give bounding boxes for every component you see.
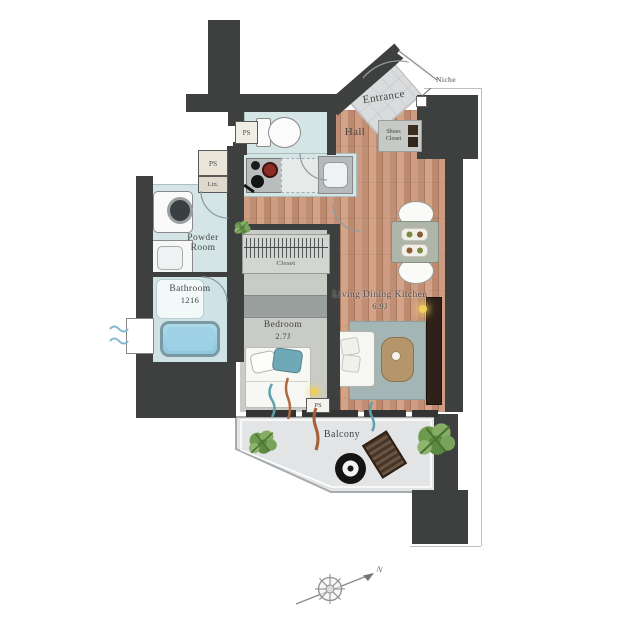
shoes-closet: Shoes Closet bbox=[378, 120, 422, 152]
washer-door bbox=[167, 197, 193, 224]
linen-label: Lin. bbox=[208, 181, 219, 188]
plant-icon bbox=[245, 428, 279, 459]
sink-basin bbox=[323, 162, 348, 188]
shoe-shelf bbox=[408, 137, 418, 147]
pipe-space-box: PS bbox=[306, 398, 330, 413]
closet-rod bbox=[244, 247, 328, 248]
window-sliding-door bbox=[364, 410, 406, 417]
window-sliding-door bbox=[246, 410, 296, 417]
shoe-shelf bbox=[408, 125, 418, 135]
bedroom-label: Bedroom bbox=[243, 320, 323, 330]
wall-segment bbox=[136, 362, 236, 418]
stove-burner bbox=[251, 161, 260, 170]
wall-segment bbox=[445, 159, 463, 412]
balcony-table bbox=[335, 453, 366, 484]
toilet-bowl bbox=[268, 117, 301, 148]
tv-board bbox=[426, 297, 442, 405]
closet-label: Closet bbox=[242, 260, 330, 267]
bedroom-size-label: 2.7J bbox=[243, 332, 323, 341]
plate bbox=[401, 244, 428, 257]
kitchen-counter bbox=[281, 158, 320, 193]
wall-segment bbox=[152, 272, 230, 277]
ps-label: PS bbox=[243, 129, 251, 137]
pot bbox=[262, 162, 278, 178]
bathroom-label: Bathroom bbox=[155, 284, 225, 294]
frying-pan bbox=[251, 175, 264, 188]
bed-sheet-line bbox=[246, 381, 308, 382]
sofa-cushion bbox=[340, 337, 361, 357]
pipe-space-box: PS bbox=[235, 121, 258, 144]
closet-hangers bbox=[246, 238, 326, 258]
bathroom-size-label: 1216 bbox=[155, 296, 225, 305]
linen-box: Lin. bbox=[198, 176, 228, 193]
hall-label: Hall bbox=[333, 127, 377, 139]
shoes-closet-label: Shoes bbox=[379, 129, 408, 136]
plate bbox=[401, 228, 428, 241]
plant-icon bbox=[414, 416, 456, 466]
ps-label: PS bbox=[314, 402, 321, 409]
ldk-label: Living Dining Kitchen bbox=[310, 290, 450, 300]
niche-label: Niche bbox=[428, 76, 464, 84]
powder-room-label-line: Powder bbox=[168, 233, 238, 243]
balcony-label: Balcony bbox=[312, 430, 372, 441]
powder-room-label: Powder Room bbox=[168, 233, 238, 254]
coffee-cup bbox=[391, 351, 401, 361]
wall-segment bbox=[186, 94, 340, 112]
wall-segment bbox=[412, 490, 468, 544]
wall-segment bbox=[240, 224, 328, 230]
pipe-shaft bbox=[126, 318, 154, 354]
pipe-space-box: PS bbox=[198, 150, 228, 176]
ldk-size-label: 6.9J bbox=[310, 302, 450, 311]
pillow-teal bbox=[272, 347, 304, 374]
floor-plan: Shoes Closet PS Lin. PS PS Entrance Nich… bbox=[0, 0, 640, 639]
sofa-cushion bbox=[341, 354, 361, 373]
floor-lamp bbox=[311, 388, 318, 395]
ps-label: PS bbox=[209, 159, 217, 168]
wall-segment bbox=[208, 20, 240, 98]
shoes-closet-label: Closet bbox=[379, 136, 408, 143]
powder-room-label-line: Room bbox=[168, 243, 238, 253]
bathtub-water bbox=[166, 327, 214, 351]
